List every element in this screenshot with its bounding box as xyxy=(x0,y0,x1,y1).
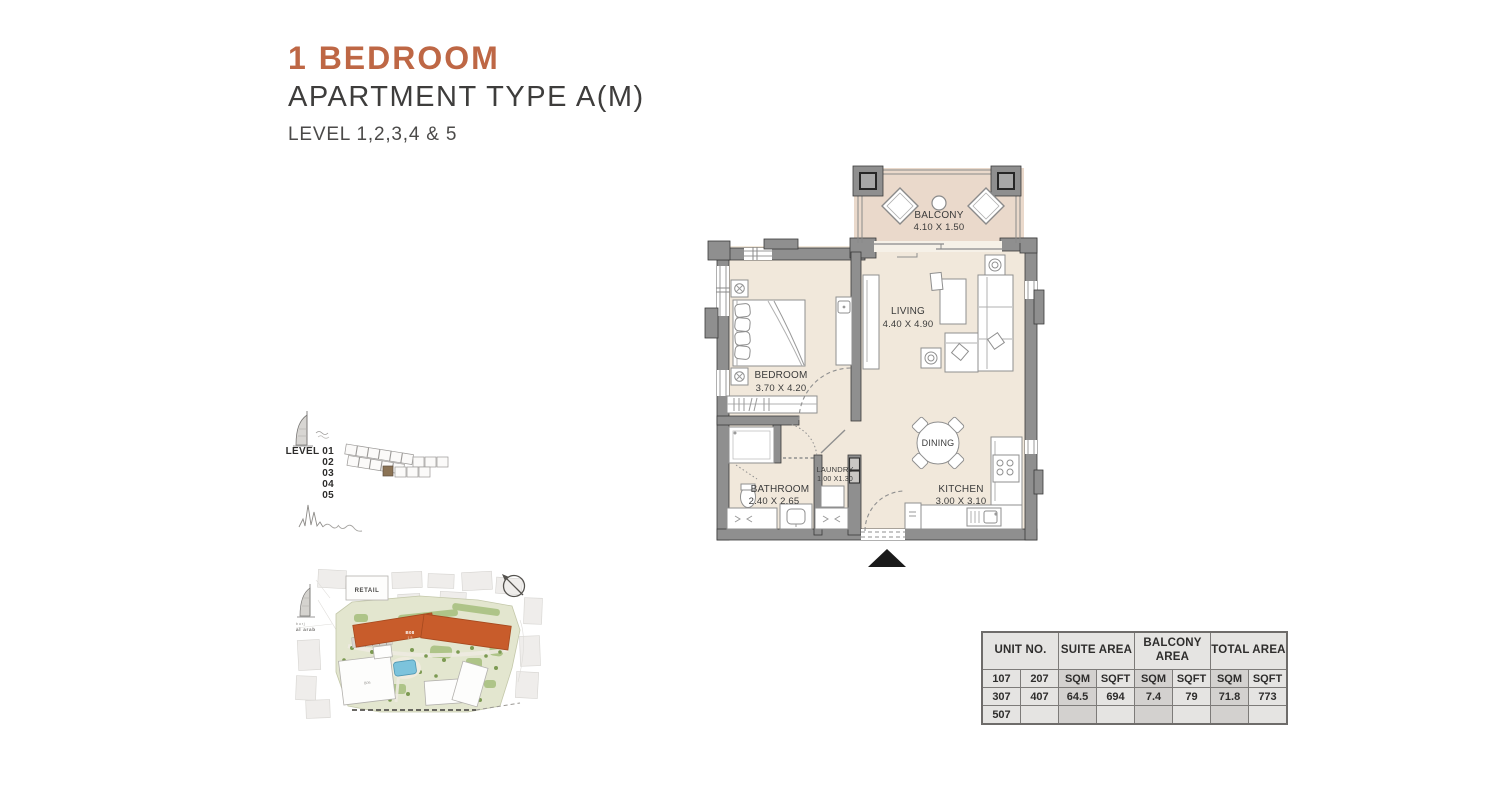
col-suite-area: SUITE AREA xyxy=(1059,632,1135,670)
bathroom-label: BATHROOM xyxy=(751,484,810,495)
highlighted-unit xyxy=(383,466,393,476)
value-cell xyxy=(1097,706,1135,725)
sqft-header: SQFT xyxy=(1097,670,1135,688)
kitchen-label: KITCHEN xyxy=(938,484,983,495)
floorplan: BALCONY 4.10 X 1.50 LIVING 4.40 X 4.90 B… xyxy=(690,155,1060,585)
laundry-label: LAUNDRY xyxy=(816,465,853,474)
area-table: UNIT NO. SUITE AREA BALCONY AREA TOTAL A… xyxy=(981,631,1288,725)
bathroom-dims: 2.40 X 2.65 xyxy=(749,496,800,507)
stove xyxy=(993,455,1019,482)
pool xyxy=(389,657,421,679)
dining-label: DINING xyxy=(922,438,955,448)
tv-unit xyxy=(940,279,966,324)
building-label: B08 xyxy=(406,630,415,635)
value-cell: 7.4 xyxy=(1135,688,1173,706)
level-labels: LEVEL 01 02 03 04 05 xyxy=(286,446,334,501)
header-block: 1 BEDROOM APARTMENT TYPE A(M) LEVEL 1,2,… xyxy=(288,42,645,144)
col-total-area: TOTAL AREA xyxy=(1211,632,1288,670)
brochure-page: 1 BEDROOM APARTMENT TYPE A(M) LEVEL 1,2,… xyxy=(0,0,1500,800)
table-subheader-row: 107 207 SQM SQFT SQM SQFT SQM SQFT xyxy=(982,670,1287,688)
plant-box xyxy=(921,348,941,368)
unit-cell xyxy=(1021,706,1059,725)
balcony-label: BALCONY xyxy=(914,210,963,221)
level-label: 04 xyxy=(322,479,334,490)
landmark-label-small: burj xyxy=(296,622,305,626)
bathroom-vanity xyxy=(727,508,777,529)
skyline-sketch xyxy=(299,505,362,531)
b06-label: B06 xyxy=(364,681,371,686)
table-row: 307 407 64.5 694 7.4 79 71.8 773 xyxy=(982,688,1287,706)
level-line: LEVEL 1,2,3,4 & 5 xyxy=(288,125,645,144)
sqm-header: SQM xyxy=(1135,670,1173,688)
entry-arrow-icon xyxy=(868,549,906,567)
unit-strip xyxy=(343,444,448,477)
unit-cell: 107 xyxy=(982,670,1021,688)
cabinet xyxy=(863,275,879,369)
living-dims: 4.40 X 4.90 xyxy=(883,319,934,330)
unit-cell: 507 xyxy=(982,706,1021,725)
value-cell xyxy=(1249,706,1288,725)
sqft-header: SQFT xyxy=(1249,670,1288,688)
apartment-type-subtitle: APARTMENT TYPE A(M) xyxy=(288,83,645,112)
sofa xyxy=(978,275,1013,371)
burj-al-arab-icon xyxy=(293,411,329,446)
sqm-header: SQM xyxy=(1211,670,1249,688)
value-cell xyxy=(1059,706,1097,725)
unit-cell: 407 xyxy=(1021,688,1059,706)
level-label: 03 xyxy=(322,468,334,479)
col-unit-no: UNIT NO. xyxy=(982,632,1059,670)
value-cell: 64.5 xyxy=(1059,688,1097,706)
value-cell xyxy=(1135,706,1173,725)
table-group-header-row: UNIT NO. SUITE AREA BALCONY AREA TOTAL A… xyxy=(982,632,1287,670)
balcony-dims: 4.10 X 1.50 xyxy=(914,222,965,233)
bedroom-label: BEDROOM xyxy=(754,370,807,381)
value-cell xyxy=(1173,706,1211,725)
page-title: 1 BEDROOM xyxy=(288,42,645,74)
balcony-table-icon xyxy=(932,196,946,210)
unit-cell: 307 xyxy=(982,688,1021,706)
value-cell: 773 xyxy=(1249,688,1288,706)
building-levels-label: 1-5 xyxy=(408,636,413,640)
laundry-counter xyxy=(815,508,848,529)
table-row: 507 xyxy=(982,706,1287,725)
sqm-header: SQM xyxy=(1059,670,1097,688)
col-balcony-area: BALCONY AREA xyxy=(1135,632,1211,670)
plant-box xyxy=(985,255,1005,275)
washing-machine xyxy=(821,486,844,507)
burj-al-arab-icon: burj al arab xyxy=(296,584,316,632)
landmark-label: al arab xyxy=(296,627,316,632)
bedroom-dims: 3.70 X 4.20 xyxy=(756,383,807,394)
retail-label: RETAIL xyxy=(355,588,380,594)
sqft-header: SQFT xyxy=(1173,670,1211,688)
laundry-dims: 1.00 X1.30 xyxy=(817,476,853,483)
value-cell: 694 xyxy=(1097,688,1135,706)
living-label: LIVING xyxy=(891,306,925,317)
level-label: 05 xyxy=(322,490,334,501)
value-cell xyxy=(1211,706,1249,725)
level-label: 02 xyxy=(322,457,334,468)
waves-icon xyxy=(316,432,328,435)
kitchen-dims: 3.00 X 3.10 xyxy=(936,496,987,507)
level-label: LEVEL 01 xyxy=(286,446,334,457)
site-map: B08 1-5 B06 RETAIL xyxy=(288,565,548,750)
value-cell: 79 xyxy=(1173,688,1211,706)
unit-cell: 207 xyxy=(1021,670,1059,688)
value-cell: 71.8 xyxy=(1211,688,1249,706)
retail-block: RETAIL xyxy=(346,576,388,600)
level-key-diagram: LEVEL 01 02 03 04 05 xyxy=(285,410,460,535)
